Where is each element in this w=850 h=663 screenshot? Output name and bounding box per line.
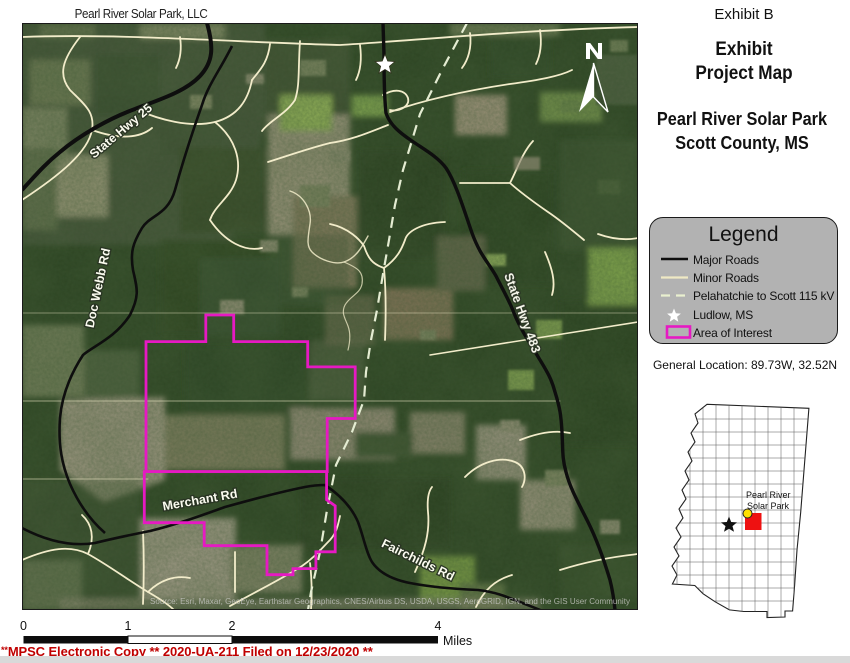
svg-text:0: 0 bbox=[20, 619, 27, 633]
svg-text:Pearl River: Pearl River bbox=[746, 490, 791, 500]
svg-text:Source: Esri, Maxar, GeoEye, E: Source: Esri, Maxar, GeoEye, Earthstar G… bbox=[150, 597, 630, 606]
svg-text:Miles: Miles bbox=[443, 634, 472, 648]
svg-text:Solar Park: Solar Park bbox=[747, 501, 790, 511]
svg-text:4: 4 bbox=[435, 619, 442, 633]
svg-text:2: 2 bbox=[229, 619, 236, 633]
svg-text:1: 1 bbox=[125, 619, 132, 633]
